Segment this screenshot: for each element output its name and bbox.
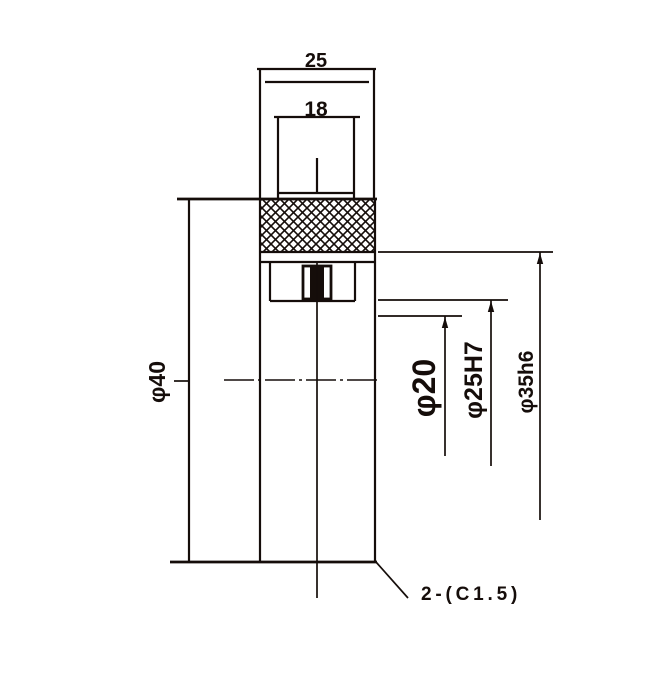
svg-text:φ40: φ40 [144, 361, 170, 403]
svg-text:18: 18 [304, 98, 328, 121]
svg-text:2-(C1.5): 2-(C1.5) [421, 584, 521, 605]
svg-text:φ35h6: φ35h6 [515, 351, 538, 414]
svg-text:25: 25 [305, 50, 327, 72]
svg-text:φ20: φ20 [406, 359, 442, 417]
svg-text:φ25H7: φ25H7 [460, 341, 488, 419]
